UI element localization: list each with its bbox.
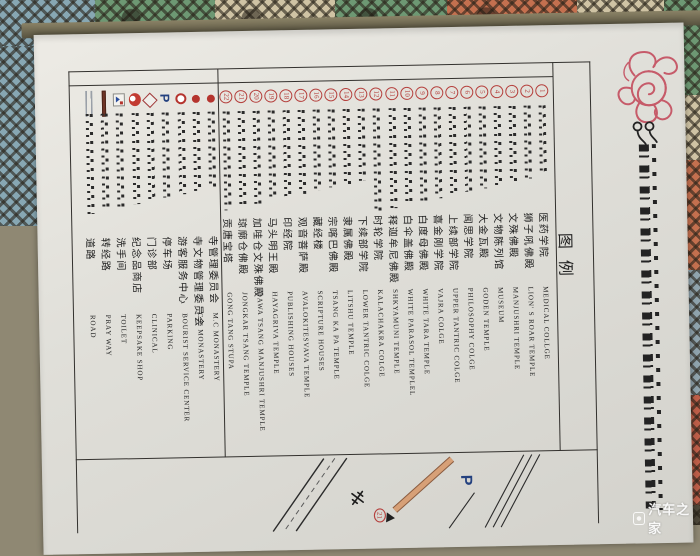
legend-item-number: 18 <box>279 89 292 102</box>
tibetan-script <box>463 107 472 192</box>
legend-label-en: AVALOKITESVAVA TEMPLE <box>301 291 311 399</box>
legend-item-number: 16 <box>309 88 322 101</box>
tibetan-script <box>116 113 125 207</box>
legend-label-zh: 门诊部 <box>145 237 161 272</box>
red-ball-icon <box>128 93 140 106</box>
legend-item-number: 2 <box>520 84 533 97</box>
legend-label-en: KEEPSAKE SHOP <box>135 314 144 381</box>
legend-label-en: GONG TANG STUPA <box>226 292 235 370</box>
legend-item-number: 13 <box>355 88 368 101</box>
legend-poster: 图例 1医药学院MEDICAL COLLGE2狮子吼佛殿LION' S ROAR… <box>0 0 700 532</box>
legend-label-zh: 加哇仓文殊佛殿 <box>251 218 268 299</box>
legend-item-number: 7 <box>445 86 458 99</box>
legend-label-en: TSANG KA PA TEMPLE <box>331 290 341 380</box>
tibetan-script <box>508 106 516 182</box>
legend-label-zh: 释迦牟尼佛殿 <box>386 215 402 284</box>
legend-item-number: 5 <box>475 85 488 98</box>
legend-label-en: WHITE TARA TEMPLE <box>421 288 431 375</box>
legend-label-zh: 文物陈列馆 <box>491 213 507 271</box>
legend-item-number: 6 <box>460 86 473 99</box>
tibetan-script <box>131 113 140 204</box>
legend-label-zh: 宗喀巴佛殿 <box>326 216 342 274</box>
toilet-sign-icon <box>113 93 125 106</box>
tibetan-script <box>268 110 277 200</box>
legend-label-zh: 纪念品商店 <box>130 237 146 295</box>
legend-label-zh: 马头明王殿 <box>266 217 282 275</box>
legend-item-number: 9 <box>415 86 428 99</box>
tibetan-script <box>283 110 292 197</box>
legend-label-zh: 道路 <box>84 238 99 261</box>
tibetan-script <box>253 111 262 204</box>
legend-item-number: 10 <box>400 87 413 100</box>
tibetan-script <box>539 105 547 175</box>
watermark-text: 汽车之家 <box>648 499 700 537</box>
legend-item-number: 19 <box>264 89 277 102</box>
legend-label-zh: 游客服务中心 <box>176 236 192 305</box>
tibetan-script <box>328 109 336 187</box>
legend-label-zh: 转经路 <box>99 238 115 273</box>
tibetan-script <box>147 113 156 201</box>
legend-item-number: 21 <box>234 90 247 103</box>
legend-label-zh: 医药学院 <box>537 212 553 258</box>
legend-item-number: 4 <box>490 85 503 98</box>
legend-label-zh: 闻思学院 <box>461 214 477 260</box>
tibetan-script <box>448 107 457 195</box>
legend-label-en: PARKING <box>165 313 174 350</box>
legend-item-number: 22 <box>219 90 232 103</box>
tibetan-script <box>298 110 307 194</box>
legend-label-zh: 隶属佛殿 <box>341 216 357 262</box>
legend-label-zh: 时轮学院 <box>371 215 387 261</box>
legend-label-en: KALACHAKRA COLGE <box>376 289 386 377</box>
tibetan-script <box>493 106 502 185</box>
legend-item-number: 17 <box>294 89 307 102</box>
legend-label-zh: 贡唐宝塔 <box>221 218 237 264</box>
tibetan-script <box>478 106 487 188</box>
legend-title: 图例 <box>555 233 580 287</box>
legend-label-en: DAWA TSANG MANJUSHRI TEMPLE <box>256 292 267 432</box>
tibetan-script <box>524 106 532 179</box>
legend-label-zh: 洗手间 <box>114 237 130 272</box>
legend-label-zh: 文殊佛殿 <box>507 213 523 259</box>
legend-item-number: 20 <box>249 90 262 103</box>
map-parking-icon: P <box>457 475 474 486</box>
tibetan-script <box>388 108 397 208</box>
tibetan-script <box>193 112 202 191</box>
legend-label-en: GODEN TEMPLE <box>481 287 490 351</box>
watermark: 汽车之家 <box>633 499 700 537</box>
legend-label-en: TOILET <box>119 314 128 344</box>
legend-label-zh: 观音菩萨殿 <box>296 217 312 275</box>
legend-label-zh: 白度母佛殿 <box>416 214 432 272</box>
legend-label-en: M.C MONASTERY <box>211 313 220 382</box>
parking-icon: P <box>158 94 173 103</box>
legend-label-en: ROAD <box>89 315 97 339</box>
legend-label-zh: 大金瓦殿 <box>476 213 492 259</box>
legend-label-zh: 狮子吼佛殿 <box>522 212 538 270</box>
tibetan-script <box>223 111 232 210</box>
tibetan-script <box>101 114 110 211</box>
legend-label-en: PRAY WAY <box>104 315 113 357</box>
legend-label-en: PHILOSOPHY COLGE <box>466 288 476 371</box>
red-dot-icon <box>192 95 200 103</box>
legend-label-zh: 藏经楼 <box>311 216 327 251</box>
legend-item-number: 1 <box>535 84 548 97</box>
legend-label-en: MUSEUM <box>496 287 505 323</box>
legend-label-zh: 停车场 <box>160 236 176 271</box>
legend-label-zh: 寺管理委员会 <box>206 235 222 304</box>
legend-label-en: C.C MONASTERY <box>196 313 205 381</box>
tibetan-script <box>177 112 186 194</box>
diamond-icon <box>142 93 158 109</box>
legend-label-en: MANJUSHRI TEMPLE <box>511 287 521 370</box>
tibetan-script <box>418 108 427 202</box>
legend-label-en: MEDICAL COLLGE <box>542 286 551 360</box>
legend-label-en: SHKYAMUNI TEMPLE <box>391 289 401 374</box>
map-circled-number-text: 21 <box>375 512 383 520</box>
legend-label-zh: 白伞盖佛殿 <box>401 215 417 273</box>
tibetan-script <box>343 109 351 184</box>
legend-item-number: 8 <box>430 86 443 99</box>
legend-label-en: CLINICAL <box>150 314 159 354</box>
legend-label-en: LOWER TANTRIC COLGE <box>361 290 371 389</box>
legend-label-zh: 喜金刚学院 <box>431 214 447 272</box>
legend-label-en: LITSHU TEMPLE <box>346 290 355 356</box>
legend-label-en: PUBLISHING HOUSES <box>286 291 296 377</box>
legend-label-zh: 印经院 <box>281 217 297 252</box>
legend-label-zh: 琼廓仓佛殿 <box>236 218 252 276</box>
map-preview: 21 P <box>76 450 599 535</box>
tibetan-head-mark <box>629 118 660 147</box>
legend-label-en: HAYAGRIVA TEMPLE <box>271 291 281 374</box>
red-ring-icon <box>175 93 186 104</box>
tibetan-script <box>358 109 366 181</box>
tibetan-script <box>208 112 216 188</box>
tibetan-script <box>313 110 322 191</box>
tibetan-script <box>162 112 171 197</box>
legend-item-number: 15 <box>324 88 337 101</box>
watermark-logo-icon <box>633 512 645 525</box>
legend-label-en: JONGKAR TSANG TEMPLE <box>241 292 251 397</box>
legend-label-en: VAJRA COLGE <box>436 288 445 344</box>
legend-item-number: 12 <box>370 87 383 100</box>
legend-label-zh: 上续部学院 <box>446 214 462 272</box>
legend-label-en: UPPER TANTRIC COLGE <box>451 288 461 384</box>
map-crossing-icon <box>347 487 368 508</box>
map-building-mark <box>386 512 395 522</box>
red-dot-icon <box>207 95 215 103</box>
tibetan-script <box>85 114 94 214</box>
tibetan-script <box>403 108 412 205</box>
legend-item-number: 14 <box>340 88 353 101</box>
legend-label-en: SCRIPTURE HOUSES <box>316 291 326 372</box>
legend-label-en: WHITE PARASOL TEMPLEL <box>406 289 416 396</box>
legend-label-en: LION' S ROAR TEMPLE <box>526 286 536 377</box>
legend-item-number: 3 <box>505 85 518 98</box>
tibetan-script <box>238 111 247 207</box>
legend-label-en: BOURIST SERVICE CENTER <box>181 313 191 422</box>
tibetan-script <box>433 107 442 198</box>
tibetan-script <box>373 108 382 211</box>
legend-label-zh: 下续部学院 <box>356 216 372 274</box>
legend-item-number: 11 <box>385 87 398 100</box>
